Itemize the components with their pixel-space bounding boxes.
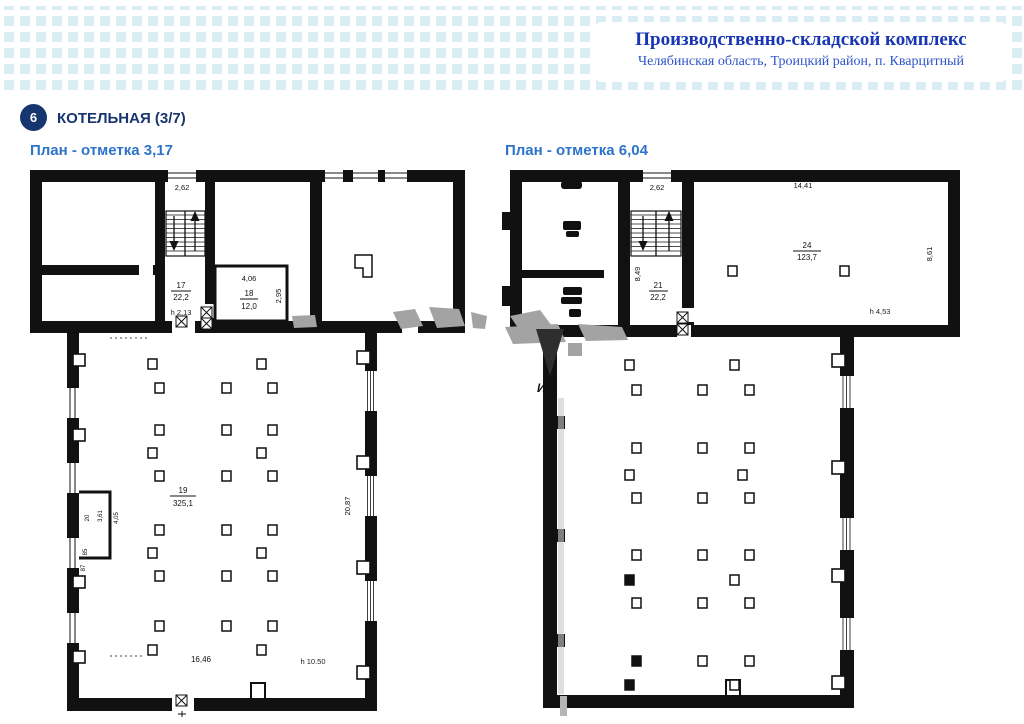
dim-label: 8,61 bbox=[925, 247, 934, 262]
equipment-symbols bbox=[561, 181, 582, 317]
floor-plan-left: 2,62 8,49 17 22,2 h 2,13 4,06 18 12,0 2,… bbox=[25, 166, 487, 718]
stairs bbox=[631, 211, 681, 256]
dim-label: 2,62 bbox=[175, 183, 190, 192]
room-number: 19 bbox=[179, 486, 188, 495]
walls bbox=[30, 170, 465, 711]
page-subtitle: Челябинская область, Троицкий район, п. … bbox=[594, 54, 1008, 70]
l-column bbox=[355, 255, 372, 277]
dim-label: 87 bbox=[81, 564, 87, 571]
watermark-text: ИМ bbox=[537, 381, 557, 395]
dim-label: 3,61 bbox=[98, 510, 104, 522]
room-number: 18 bbox=[245, 289, 254, 298]
room-area: 123,7 bbox=[797, 253, 818, 262]
interior-columns bbox=[148, 359, 277, 655]
door-symbols bbox=[677, 312, 688, 335]
room-number: 20 bbox=[85, 514, 91, 521]
dim-label: 2,62 bbox=[650, 183, 665, 192]
height-label: h 4,53 bbox=[870, 307, 891, 316]
section-title: КОТЕЛЬНАЯ (3/7) bbox=[57, 110, 186, 127]
watermark-fragment: ИМ bbox=[505, 310, 628, 716]
plan-title-right: План - отметка 6,04 bbox=[505, 142, 648, 159]
dim-label: 20,87 bbox=[343, 497, 352, 516]
room-number: 17 bbox=[177, 281, 186, 290]
dim-label: 8,49 bbox=[157, 266, 166, 281]
walls bbox=[502, 170, 960, 708]
room-area: 22,2 bbox=[173, 293, 189, 302]
vestibule-partition bbox=[79, 492, 110, 558]
dim-label: 85 bbox=[83, 548, 89, 555]
height-label: h 2,13 bbox=[171, 308, 192, 317]
brochure-page: Производственно-складской комплекс Челяб… bbox=[0, 0, 1024, 724]
dim-label: 16,46 bbox=[191, 655, 212, 664]
dim-label: 4,06 bbox=[242, 274, 257, 283]
height-label: h 10.50 bbox=[300, 657, 325, 666]
stairs bbox=[166, 211, 205, 256]
dim-label: 2,95 bbox=[274, 289, 283, 304]
floor-plan-right: ИМ 2,62 8,49 21 22,2 14,41 24 123,7 8,61… bbox=[500, 166, 970, 718]
room-number: 24 bbox=[803, 241, 812, 250]
room-number: 21 bbox=[654, 281, 663, 290]
dim-label: 14,41 bbox=[794, 181, 813, 190]
room-area: 325,1 bbox=[173, 499, 194, 508]
section-number-badge: 6 bbox=[20, 104, 47, 131]
dim-label: 8,49 bbox=[633, 267, 642, 282]
room-area: 12,0 bbox=[241, 302, 257, 311]
wall-columns bbox=[557, 354, 845, 696]
dim-label: 4,05 bbox=[114, 512, 120, 524]
dashed-lines bbox=[110, 338, 147, 656]
plan-title-left: План - отметка 3,17 bbox=[30, 142, 173, 159]
page-title: Производственно-складской комплекс bbox=[594, 29, 1008, 51]
room-area: 22,2 bbox=[650, 293, 666, 302]
header: Производственно-складской комплекс Челяб… bbox=[594, 22, 1008, 82]
